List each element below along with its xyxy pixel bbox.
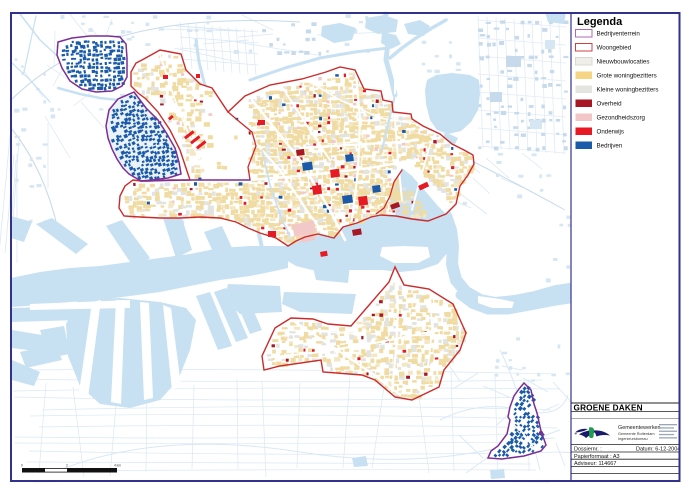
svg-text:Legenda: Legenda (577, 16, 623, 28)
svg-text:Kleine woningbezitters: Kleine woningbezitters (597, 87, 659, 94)
svg-text:Ingenieursbureau: Ingenieursbureau (618, 437, 648, 441)
svg-text:4 km: 4 km (114, 464, 121, 468)
svg-text:Overheid: Overheid (597, 101, 623, 108)
svg-text:Onderwijs: Onderwijs (597, 129, 625, 136)
svg-text:Nieuwbouwlocaties: Nieuwbouwlocaties (597, 59, 650, 66)
svg-text:GROENE DAKEN: GROENE DAKEN (574, 403, 643, 412)
svg-text:Gezondheidszorg: Gezondheidszorg (597, 115, 646, 122)
svg-text:Woongebied: Woongebied (597, 45, 632, 52)
svg-text:Grote woningbezitters: Grote woningbezitters (597, 73, 657, 80)
svg-text:0: 0 (21, 464, 23, 468)
svg-text:Gemeentewerken: Gemeentewerken (618, 425, 661, 431)
svg-text:2: 2 (66, 464, 68, 468)
svg-text:Bedrijventerrein: Bedrijventerrein (597, 31, 641, 38)
svg-text:Gemeente Rotterdam: Gemeente Rotterdam (618, 432, 655, 436)
svg-text:Bedrijven: Bedrijven (597, 143, 623, 150)
